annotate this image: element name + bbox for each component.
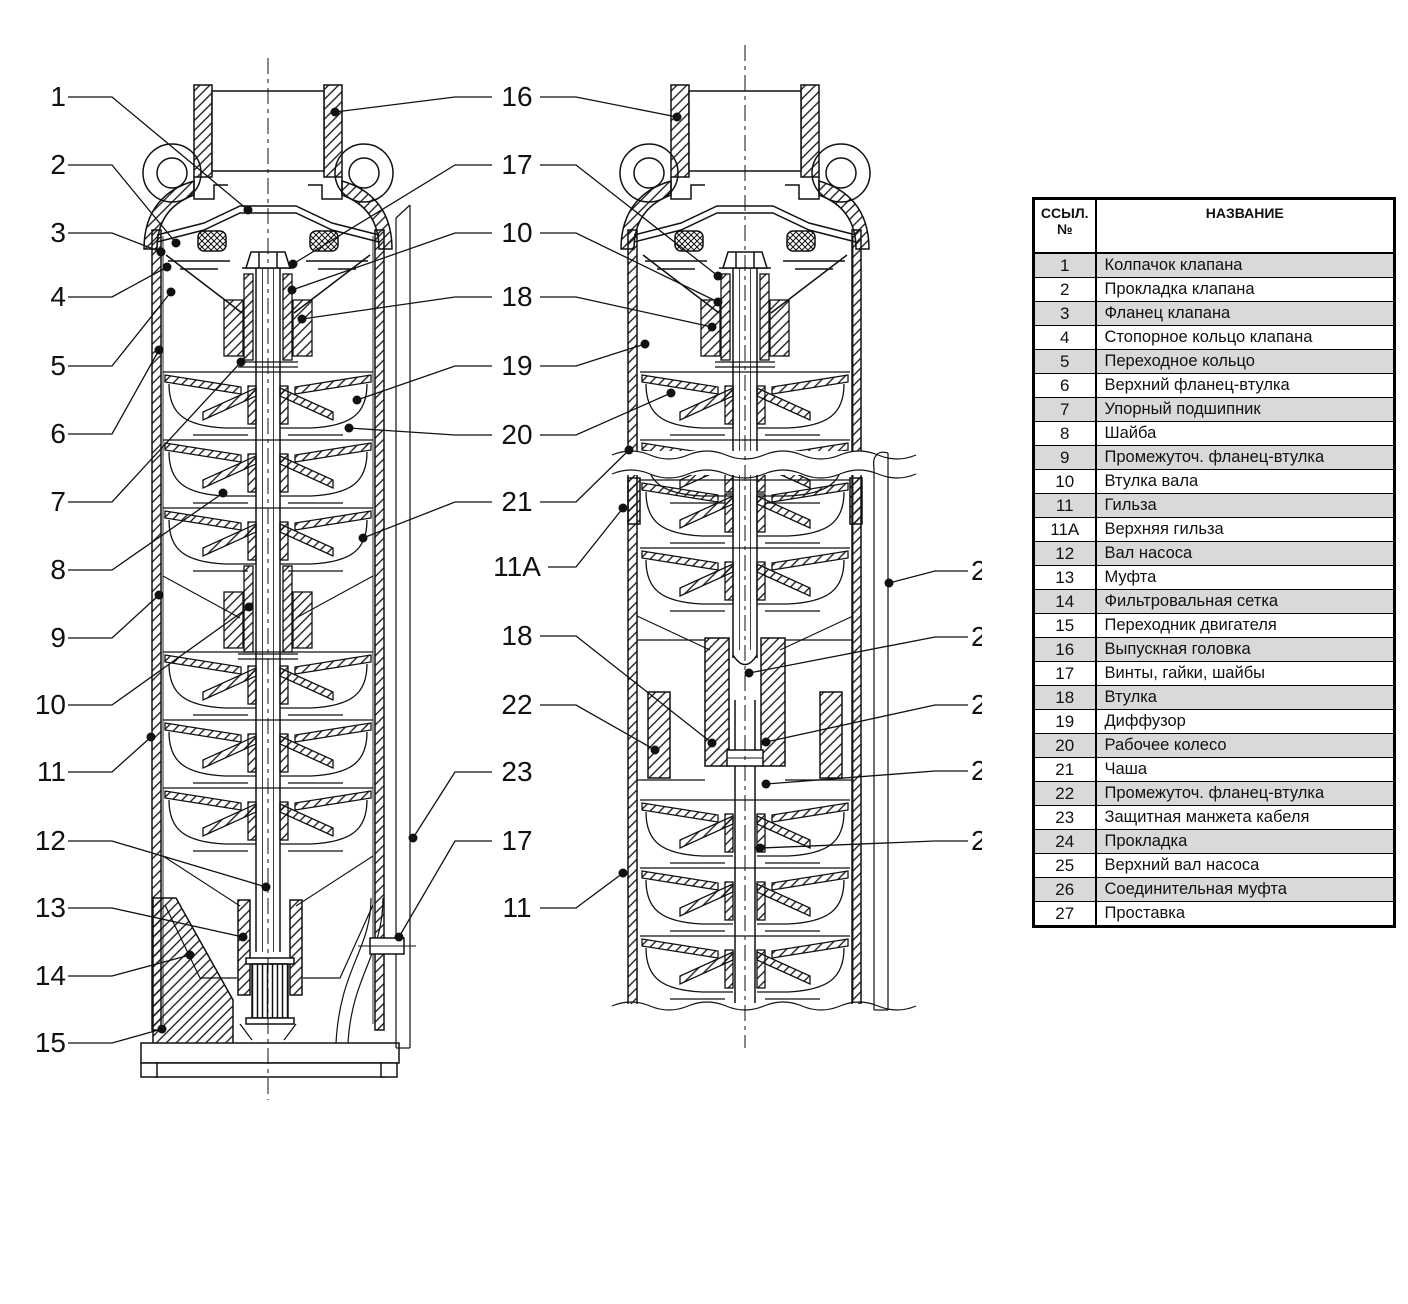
table-row: 10Втулка вала <box>1034 470 1395 494</box>
parts-table-header: ССЫЛ. № НАЗВАНИЕ <box>1034 199 1395 254</box>
table-row: 9Промежуточ. фланец-втулка <box>1034 446 1395 470</box>
callout-left-7: 7 <box>18 486 66 518</box>
callout-mid-17b: 17 <box>488 825 546 857</box>
ref-cell: 11 <box>1034 494 1096 518</box>
ref-cell: 7 <box>1034 398 1096 422</box>
name-cell: Колпачок клапана <box>1096 253 1395 278</box>
name-header-cell: НАЗВАНИЕ <box>1096 199 1395 254</box>
ref-cell: 6 <box>1034 374 1096 398</box>
ref-cell: 15 <box>1034 614 1096 638</box>
callout-right-truncated-2: 2 <box>971 621 982 653</box>
table-row: 7Упорный подшипник <box>1034 398 1395 422</box>
name-cell: Верхний фланец-втулка <box>1096 374 1395 398</box>
callout-left-2: 2 <box>18 149 66 181</box>
callout-mid-11A: 11A <box>488 551 546 583</box>
table-row: 27Проставка <box>1034 902 1395 927</box>
name-cell: Винты, гайки, шайбы <box>1096 662 1395 686</box>
ref-cell: 14 <box>1034 590 1096 614</box>
callout-mid-10: 10 <box>488 217 546 249</box>
name-cell: Соединительная муфта <box>1096 878 1395 902</box>
table-row: 14Фильтровальная сетка <box>1034 590 1395 614</box>
table-row: 16Выпускная головка <box>1034 638 1395 662</box>
table-row: 1Колпачок клапана <box>1034 253 1395 278</box>
table-row: 25Верхний вал насоса <box>1034 854 1395 878</box>
name-cell: Выпускная головка <box>1096 638 1395 662</box>
name-cell: Прокладка клапана <box>1096 278 1395 302</box>
ref-cell: 11A <box>1034 518 1096 542</box>
table-row: 4Стопорное кольцо клапана <box>1034 326 1395 350</box>
callout-left-5: 5 <box>18 350 66 382</box>
table-row: 21Чаша <box>1034 758 1395 782</box>
callout-left-11: 11 <box>18 756 66 788</box>
ref-cell: 17 <box>1034 662 1096 686</box>
name-cell: Прокладка <box>1096 830 1395 854</box>
name-cell: Чаша <box>1096 758 1395 782</box>
table-row: 11Гильза <box>1034 494 1395 518</box>
name-cell: Муфта <box>1096 566 1395 590</box>
ref-header-cell: ССЫЛ. № <box>1034 199 1096 254</box>
name-cell: Рабочее колесо <box>1096 734 1395 758</box>
ref-cell: 5 <box>1034 350 1096 374</box>
ref-cell: 2 <box>1034 278 1096 302</box>
table-row: 20Рабочее колесо <box>1034 734 1395 758</box>
table-row: 6Верхний фланец-втулка <box>1034 374 1395 398</box>
name-cell: Защитная манжета кабеля <box>1096 806 1395 830</box>
callout-right-truncated-4: 2 <box>971 755 982 787</box>
callout-mid-23: 23 <box>488 756 546 788</box>
parts-table: ССЫЛ. № НАЗВАНИЕ 1Колпачок клапана 2Прок… <box>1032 197 1396 928</box>
ref-cell: 23 <box>1034 806 1096 830</box>
name-cell: Промежуточ. фланец-втулка <box>1096 782 1395 806</box>
ref-cell: 20 <box>1034 734 1096 758</box>
callout-left-4: 4 <box>18 281 66 313</box>
table-row: 18Втулка <box>1034 686 1395 710</box>
callout-mid-18b: 18 <box>488 620 546 652</box>
callout-left-14: 14 <box>18 960 66 992</box>
middle-pump-cross-section <box>608 45 916 1048</box>
ref-cell: 13 <box>1034 566 1096 590</box>
table-row: 19Диффузор <box>1034 710 1395 734</box>
ref-cell: 25 <box>1034 854 1096 878</box>
callout-left-6: 6 <box>18 418 66 450</box>
ref-cell: 22 <box>1034 782 1096 806</box>
callout-right-truncated-1: 2 <box>971 555 982 587</box>
table-row: 17Винты, гайки, шайбы <box>1034 662 1395 686</box>
table-row: 15Переходник двигателя <box>1034 614 1395 638</box>
name-cell: Переходное кольцо <box>1096 350 1395 374</box>
callout-left-8: 8 <box>18 554 66 586</box>
name-cell: Верхняя гильза <box>1096 518 1395 542</box>
callout-left-9: 9 <box>18 622 66 654</box>
name-cell: Промежуточ. фланец-втулка <box>1096 446 1395 470</box>
table-row: 23Защитная манжета кабеля <box>1034 806 1395 830</box>
callout-mid-22: 22 <box>488 689 546 721</box>
table-row: 5Переходное кольцо <box>1034 350 1395 374</box>
ref-cell: 10 <box>1034 470 1096 494</box>
callout-left-13: 13 <box>18 892 66 924</box>
ref-header-line1: ССЫЛ. <box>1037 205 1093 221</box>
callout-left-3: 3 <box>18 217 66 249</box>
name-cell: Диффузор <box>1096 710 1395 734</box>
ref-cell: 27 <box>1034 902 1096 927</box>
ref-cell: 12 <box>1034 542 1096 566</box>
table-row: 22Промежуточ. фланец-втулка <box>1034 782 1395 806</box>
ref-header-line2: № <box>1037 221 1093 237</box>
name-cell: Проставка <box>1096 902 1395 927</box>
pump-diagram-page: 1 2 3 4 5 6 7 8 9 10 11 12 13 14 15 16 1… <box>0 0 1408 1304</box>
table-row: 8Шайба <box>1034 422 1395 446</box>
name-cell: Шайба <box>1096 422 1395 446</box>
ref-cell: 24 <box>1034 830 1096 854</box>
ref-cell: 4 <box>1034 326 1096 350</box>
name-cell: Втулка <box>1096 686 1395 710</box>
name-cell: Фильтровальная сетка <box>1096 590 1395 614</box>
callout-mid-11: 11 <box>488 892 546 924</box>
ref-cell: 3 <box>1034 302 1096 326</box>
table-row: 2Прокладка клапана <box>1034 278 1395 302</box>
ref-cell: 16 <box>1034 638 1096 662</box>
callout-left-1: 1 <box>18 81 66 113</box>
ref-cell: 1 <box>1034 253 1096 278</box>
table-row: 24Прокладка <box>1034 830 1395 854</box>
callout-right-truncated-3: 2 <box>971 689 982 721</box>
callout-mid-18: 18 <box>488 281 546 313</box>
ref-cell: 26 <box>1034 878 1096 902</box>
name-cell: Переходник двигателя <box>1096 614 1395 638</box>
name-cell: Фланец клапана <box>1096 302 1395 326</box>
ref-cell: 21 <box>1034 758 1096 782</box>
callout-right-truncated-5: 2 <box>971 825 982 857</box>
ref-cell: 8 <box>1034 422 1096 446</box>
table-row: 26Соединительная муфта <box>1034 878 1395 902</box>
table-row: 11AВерхняя гильза <box>1034 518 1395 542</box>
name-cell: Упорный подшипник <box>1096 398 1395 422</box>
table-row: 12Вал насоса <box>1034 542 1395 566</box>
name-cell: Гильза <box>1096 494 1395 518</box>
ref-cell: 19 <box>1034 710 1096 734</box>
callout-left-15: 15 <box>18 1027 66 1059</box>
callout-mid-16: 16 <box>488 81 546 113</box>
table-row: 13Муфта <box>1034 566 1395 590</box>
callout-left-10: 10 <box>18 689 66 721</box>
ref-cell: 9 <box>1034 446 1096 470</box>
callout-mid-20: 20 <box>488 419 546 451</box>
name-cell: Стопорное кольцо клапана <box>1096 326 1395 350</box>
ref-cell: 18 <box>1034 686 1096 710</box>
name-cell: Втулка вала <box>1096 470 1395 494</box>
name-cell: Верхний вал насоса <box>1096 854 1395 878</box>
callout-left-12: 12 <box>18 825 66 857</box>
callout-mid-21: 21 <box>488 486 546 518</box>
callout-mid-17: 17 <box>488 149 546 181</box>
callout-mid-19: 19 <box>488 350 546 382</box>
name-cell: Вал насоса <box>1096 542 1395 566</box>
table-row: 3Фланец клапана <box>1034 302 1395 326</box>
